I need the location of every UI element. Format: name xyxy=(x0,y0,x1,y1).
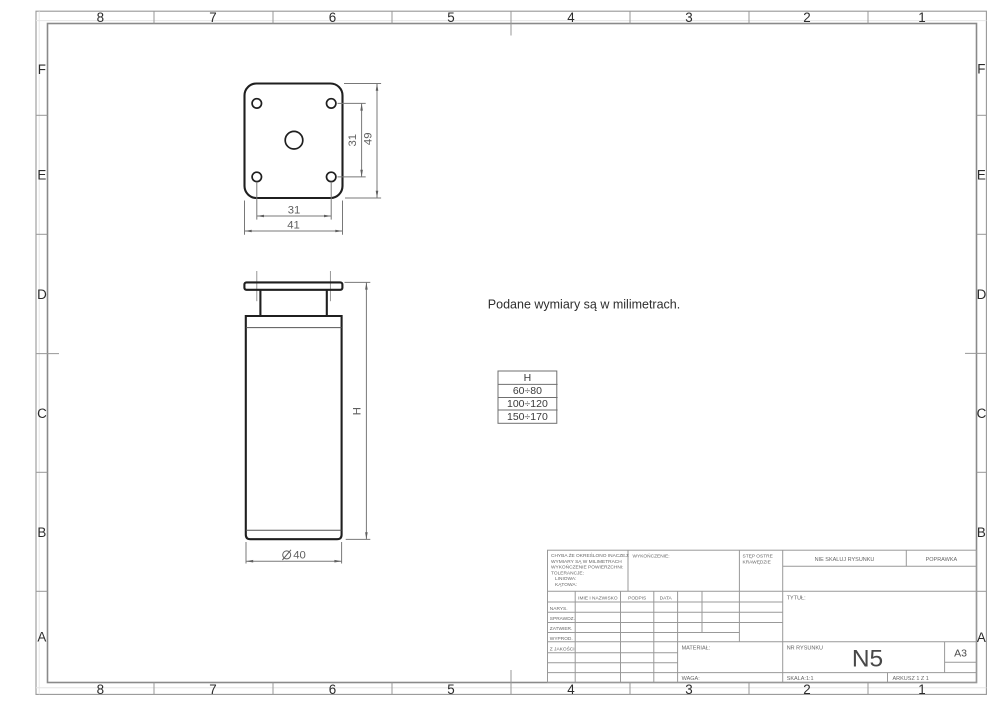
svg-text:60÷80: 60÷80 xyxy=(513,385,542,397)
svg-text:A: A xyxy=(977,630,986,645)
svg-text:5: 5 xyxy=(447,10,454,25)
svg-text:POPRAWKA: POPRAWKA xyxy=(926,557,958,563)
svg-text:3: 3 xyxy=(685,10,692,25)
svg-text:A: A xyxy=(37,630,46,645)
svg-text:NR RYSUNKU: NR RYSUNKU xyxy=(787,646,823,652)
svg-text:WYKOŃCZENIE POWIERZCHNI:: WYKOŃCZENIE POWIERZCHNI: xyxy=(551,564,624,571)
svg-text:WYMIARY SĄ W MILIMETRACH: WYMIARY SĄ W MILIMETRACH xyxy=(551,559,622,565)
svg-text:C: C xyxy=(977,406,987,421)
svg-text:Podane wymiary są w milimetrac: Podane wymiary są w milimetrach. xyxy=(488,298,680,312)
svg-text:49: 49 xyxy=(362,133,374,146)
svg-text:B: B xyxy=(977,525,986,540)
svg-text:KĄTOWA:: KĄTOWA: xyxy=(555,582,577,588)
svg-text:DATA: DATA xyxy=(660,596,673,602)
svg-text:MATERIAŁ:: MATERIAŁ: xyxy=(682,646,711,652)
svg-text:ARKUSZ 1 Z 1: ARKUSZ 1 Z 1 xyxy=(893,676,929,682)
svg-text:7: 7 xyxy=(209,10,216,25)
svg-text:NIE SKALUJ RYSUNKU: NIE SKALUJ RYSUNKU xyxy=(815,557,875,563)
svg-text:31: 31 xyxy=(347,134,359,147)
svg-text:F: F xyxy=(977,62,985,77)
svg-text:6: 6 xyxy=(329,10,336,25)
svg-text:H: H xyxy=(351,407,363,415)
svg-text:41: 41 xyxy=(287,220,300,232)
svg-text:31: 31 xyxy=(288,205,301,217)
svg-text:8: 8 xyxy=(97,682,104,697)
svg-text:D: D xyxy=(977,287,987,302)
svg-text:D: D xyxy=(37,287,47,302)
svg-text:WAGA:: WAGA: xyxy=(682,676,701,682)
svg-text:1: 1 xyxy=(918,682,925,697)
svg-text:3: 3 xyxy=(685,682,692,697)
svg-text:SPRAWDZ.: SPRAWDZ. xyxy=(550,616,575,622)
svg-text:ZATWIER.: ZATWIER. xyxy=(550,626,573,632)
svg-text:E: E xyxy=(37,168,46,183)
svg-text:WYKOŃCZENIE:: WYKOŃCZENIE: xyxy=(633,553,670,560)
svg-text:NARYS.: NARYS. xyxy=(550,606,568,612)
svg-text:SKALA:1:1: SKALA:1:1 xyxy=(787,676,814,682)
svg-text:STĘP OSTRE: STĘP OSTRE xyxy=(743,554,773,560)
svg-text:7: 7 xyxy=(209,682,216,697)
svg-text:1: 1 xyxy=(918,10,925,25)
svg-text:5: 5 xyxy=(447,682,454,697)
svg-text:40: 40 xyxy=(293,550,306,562)
svg-text:2: 2 xyxy=(803,682,810,697)
svg-text:KRAWĘDZIE: KRAWĘDZIE xyxy=(743,560,771,566)
svg-text:B: B xyxy=(37,525,46,540)
svg-text:N5: N5 xyxy=(852,646,883,673)
svg-text:TYTUŁ:: TYTUŁ: xyxy=(787,596,806,602)
svg-text:4: 4 xyxy=(567,10,575,25)
svg-text:E: E xyxy=(977,168,986,183)
svg-text:LINIOWA:: LINIOWA: xyxy=(555,576,576,582)
svg-text:F: F xyxy=(38,62,46,77)
svg-text:IMIE I NAZWISKO: IMIE I NAZWISKO xyxy=(578,596,618,602)
svg-text:WYPROD.: WYPROD. xyxy=(550,636,573,642)
svg-text:4: 4 xyxy=(567,682,575,697)
svg-text:100÷120: 100÷120 xyxy=(507,398,548,410)
svg-text:A3: A3 xyxy=(954,648,967,660)
svg-text:2: 2 xyxy=(803,10,810,25)
svg-text:150÷170: 150÷170 xyxy=(507,411,548,423)
svg-text:8: 8 xyxy=(97,10,104,25)
svg-text:H: H xyxy=(524,372,532,384)
svg-text:C: C xyxy=(37,406,47,421)
svg-text:PODPIS: PODPIS xyxy=(628,596,646,602)
svg-text:6: 6 xyxy=(329,682,336,697)
svg-text:TOLERANCJE:: TOLERANCJE: xyxy=(551,570,584,576)
